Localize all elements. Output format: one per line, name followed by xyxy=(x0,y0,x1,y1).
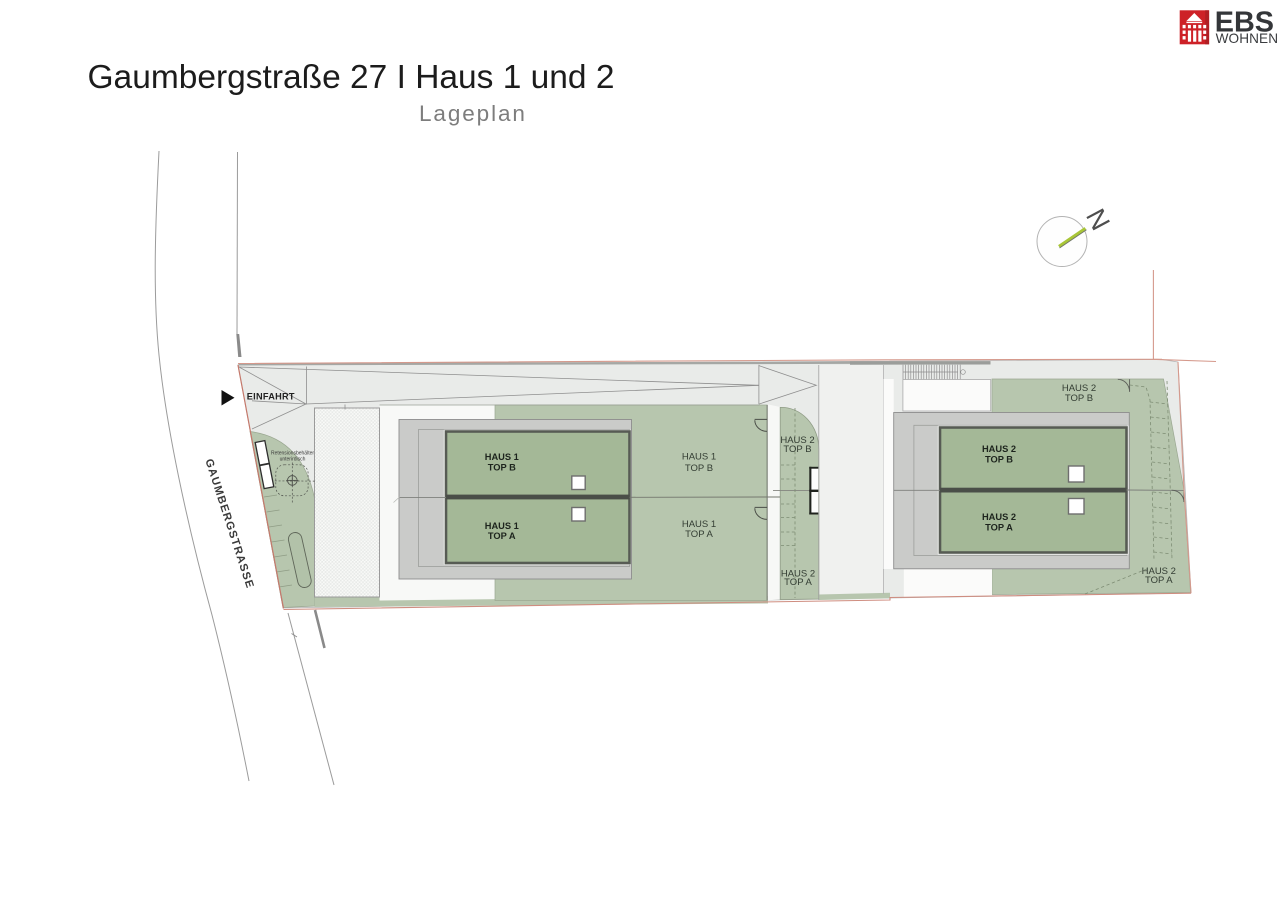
svg-text:TOP A: TOP A xyxy=(985,523,1013,533)
svg-text:TOP B: TOP B xyxy=(1065,393,1093,404)
svg-text:TOP B: TOP B xyxy=(985,455,1013,465)
svg-text:TOP A: TOP A xyxy=(784,577,812,588)
svg-text:WOHNEN: WOHNEN xyxy=(1216,31,1279,46)
svg-text:EINFAHRT: EINFAHRT xyxy=(247,392,295,402)
svg-text:HAUS 1: HAUS 1 xyxy=(682,452,716,463)
svg-text:unterirdisch: unterirdisch xyxy=(280,457,306,463)
svg-text:Lageplan: Lageplan xyxy=(419,101,527,126)
svg-text:TOP B: TOP B xyxy=(488,463,516,473)
svg-text:HAUS 1: HAUS 1 xyxy=(485,452,519,462)
svg-text:TOP A: TOP A xyxy=(1145,575,1173,586)
svg-text:Gaumbergstraße 27 I Haus 1 und: Gaumbergstraße 27 I Haus 1 und 2 xyxy=(88,59,615,96)
svg-text:HAUS 2: HAUS 2 xyxy=(982,512,1016,522)
svg-text:TOP B: TOP B xyxy=(783,444,811,455)
svg-text:HAUS 1: HAUS 1 xyxy=(485,521,519,531)
svg-text:TOP A: TOP A xyxy=(685,529,713,540)
svg-text:HAUS 2: HAUS 2 xyxy=(982,444,1016,454)
svg-text:TOP B: TOP B xyxy=(685,463,713,474)
svg-text:TOP A: TOP A xyxy=(488,531,516,541)
